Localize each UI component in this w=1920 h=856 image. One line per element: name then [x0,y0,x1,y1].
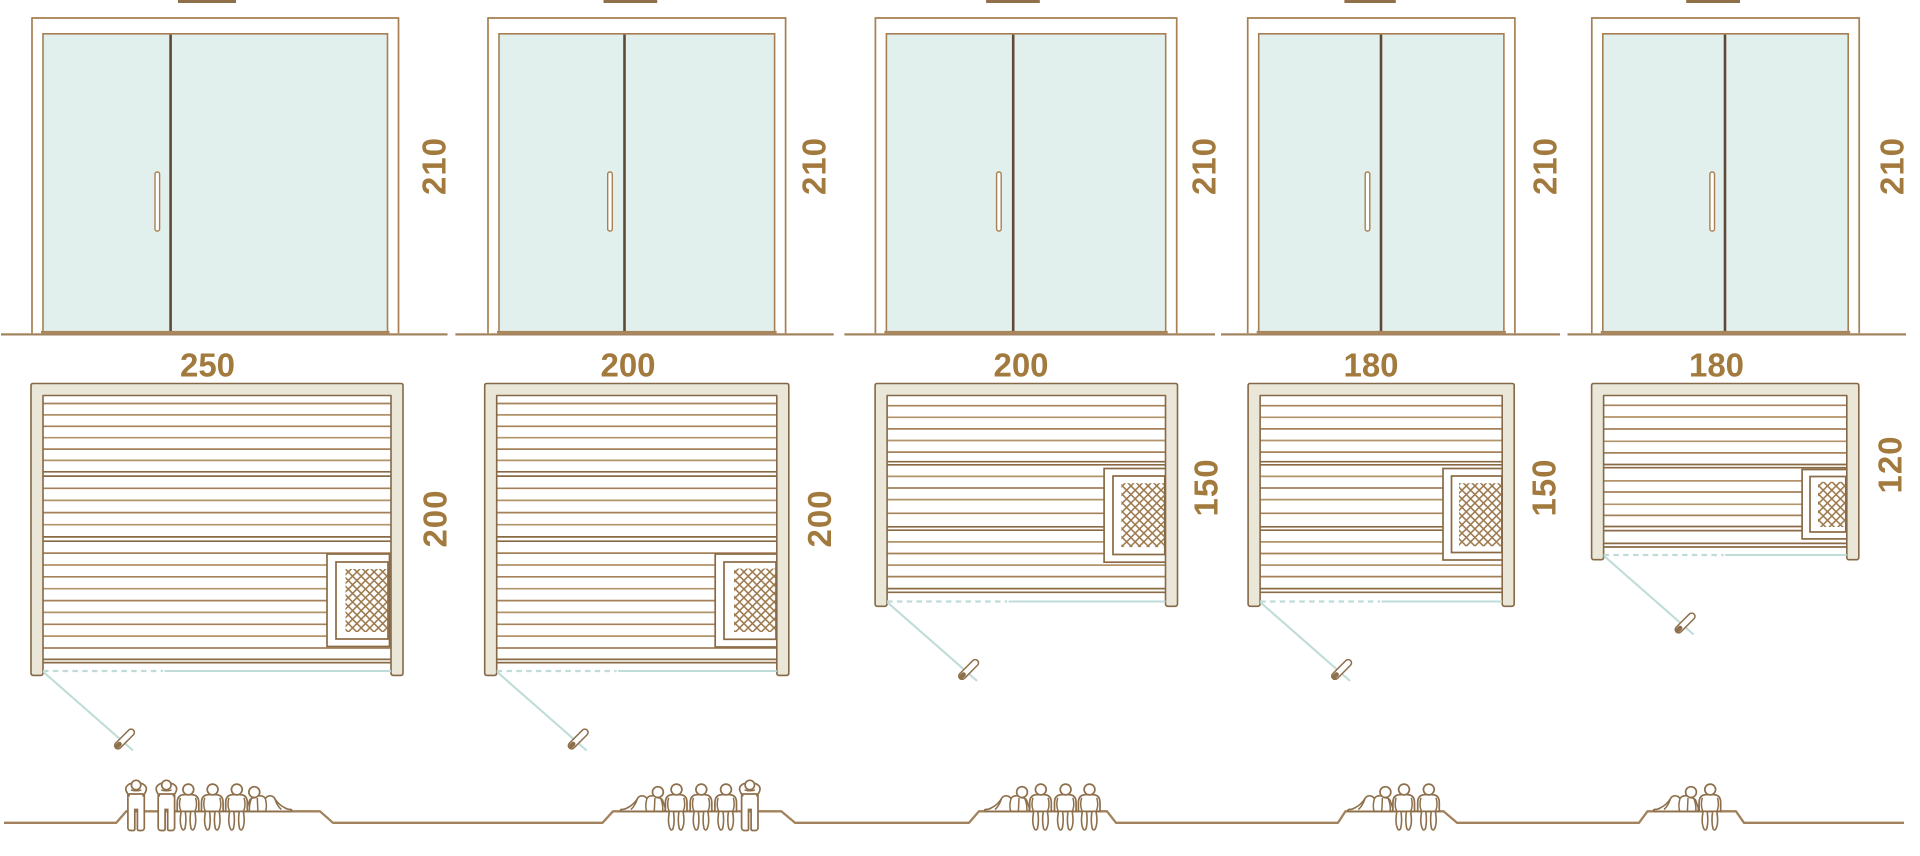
svg-text:120: 120 [1872,435,1909,493]
svg-text:210: 210 [416,137,453,195]
svg-text:200: 200 [801,489,838,547]
svg-text:210: 210 [796,137,833,195]
svg-text:210: 210 [1874,137,1911,195]
svg-text:200: 200 [417,489,454,547]
svg-text:250: 250 [180,346,235,383]
svg-text:180: 180 [1343,346,1398,383]
svg-text:150: 150 [1526,458,1563,516]
svg-text:210: 210 [1186,137,1223,195]
svg-text:210: 210 [1527,137,1564,195]
svg-text:200: 200 [600,346,655,383]
svg-text:150: 150 [1188,458,1225,516]
svg-text:200: 200 [993,346,1048,383]
svg-text:180: 180 [1689,346,1744,383]
